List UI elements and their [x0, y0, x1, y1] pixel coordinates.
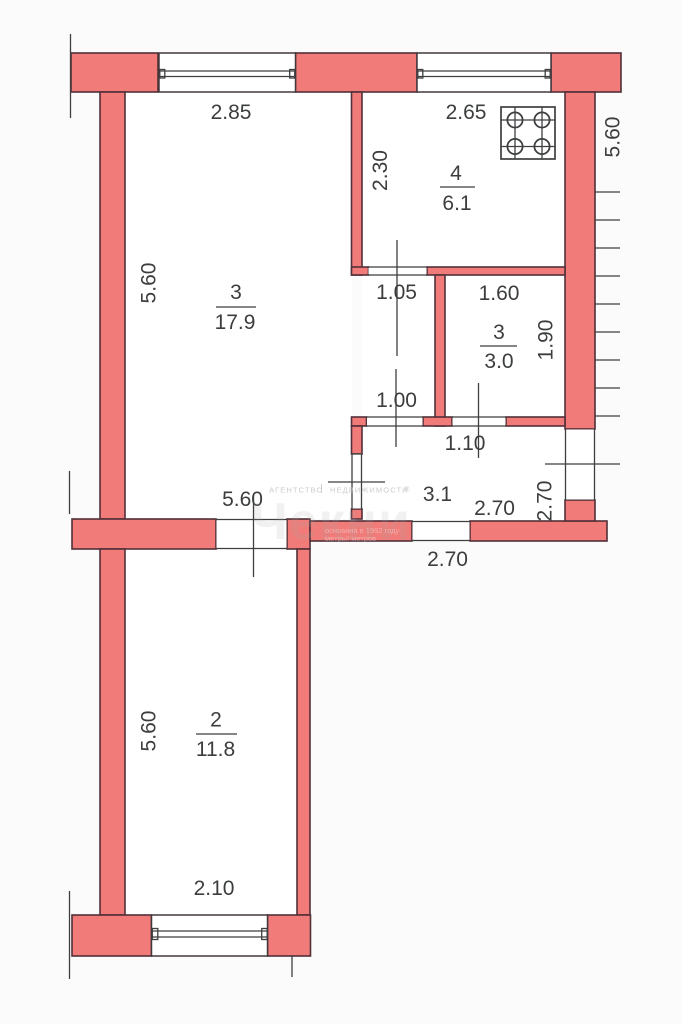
svg-text:1.00: 1.00 [376, 389, 417, 412]
svg-text:17.9: 17.9 [215, 311, 256, 334]
svg-text:1.60: 1.60 [479, 282, 520, 305]
svg-text:2.10: 2.10 [194, 877, 235, 900]
svg-text:6.1: 6.1 [442, 192, 471, 215]
svg-text:11.8: 11.8 [196, 738, 235, 761]
svg-text:5.60: 5.60 [138, 711, 161, 752]
svg-text:метры! метров: метры! метров [325, 534, 376, 543]
svg-text:2.70: 2.70 [474, 497, 515, 520]
svg-text:2.70: 2.70 [427, 548, 468, 571]
svg-text:3.0: 3.0 [484, 350, 513, 373]
svg-text:2.65: 2.65 [446, 101, 487, 124]
svg-text:5.60: 5.60 [138, 263, 161, 304]
svg-text:1.10: 1.10 [445, 432, 486, 455]
svg-text:1.05: 1.05 [376, 281, 417, 304]
svg-text:2.85: 2.85 [211, 101, 252, 124]
svg-text:4: 4 [450, 162, 462, 185]
svg-text:1.90: 1.90 [535, 320, 558, 361]
svg-text:3: 3 [230, 281, 242, 304]
svg-text:5.60: 5.60 [602, 117, 625, 158]
svg-text:3.1: 3.1 [423, 483, 452, 506]
svg-text:2: 2 [210, 709, 222, 732]
svg-text:2.30: 2.30 [369, 150, 392, 191]
svg-text:3: 3 [493, 321, 505, 344]
svg-text:2.70: 2.70 [534, 481, 557, 522]
